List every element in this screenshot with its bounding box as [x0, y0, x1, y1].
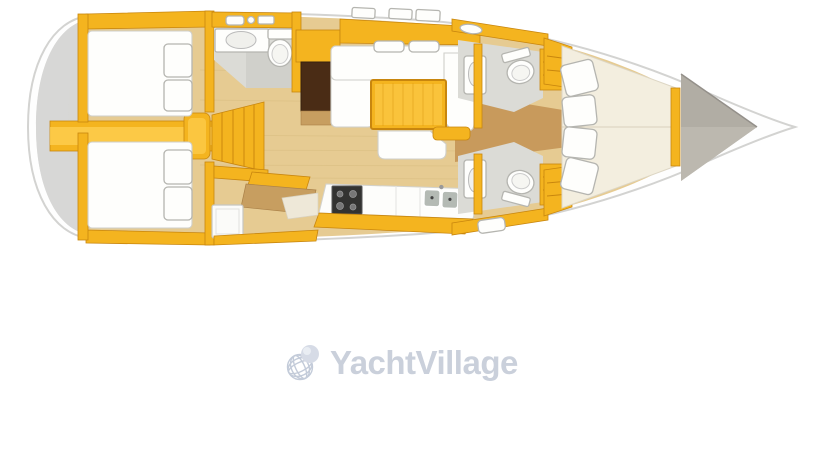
chart-table: [212, 205, 243, 238]
pillow: [164, 187, 192, 220]
sofa-cushion: [374, 41, 404, 52]
deck-hatch: [352, 7, 375, 18]
pillow: [562, 126, 598, 159]
yacht-floorplan: [0, 0, 819, 460]
pillow: [560, 157, 600, 196]
forward-cabin: [544, 38, 680, 216]
pillow: [562, 94, 598, 127]
pillow: [164, 150, 192, 184]
mast-post-cabinet: [433, 127, 470, 140]
pillow: [560, 58, 600, 97]
pillow: [164, 80, 192, 111]
salon-table: [371, 80, 446, 129]
aft-head-sink-basin: [226, 32, 256, 49]
vanity-item: [258, 16, 274, 24]
nav-seat: [282, 193, 318, 219]
aft-head-toilet-tank: [268, 29, 293, 39]
deck-hatch: [389, 8, 412, 19]
pillow: [164, 44, 192, 77]
watermark: YachtVillage: [283, 342, 518, 384]
anchor-locker: [681, 74, 757, 181]
watermark-text: YachtVillage: [330, 344, 518, 382]
aft-cabin-port: [78, 11, 210, 122]
wardrobe: [301, 62, 335, 111]
deck-hatch: [416, 9, 441, 21]
vberth-footboard: [671, 88, 680, 166]
globe-icon: [283, 342, 327, 384]
vanity-item: [226, 16, 244, 25]
wardrobe-shelf: [301, 111, 335, 125]
nav-station: [212, 166, 318, 245]
sofa-cushion: [409, 41, 439, 52]
yacht-listing-image: YachtVillage: [0, 0, 819, 460]
vanity-item: [248, 17, 255, 24]
galley-stove: [332, 186, 362, 214]
